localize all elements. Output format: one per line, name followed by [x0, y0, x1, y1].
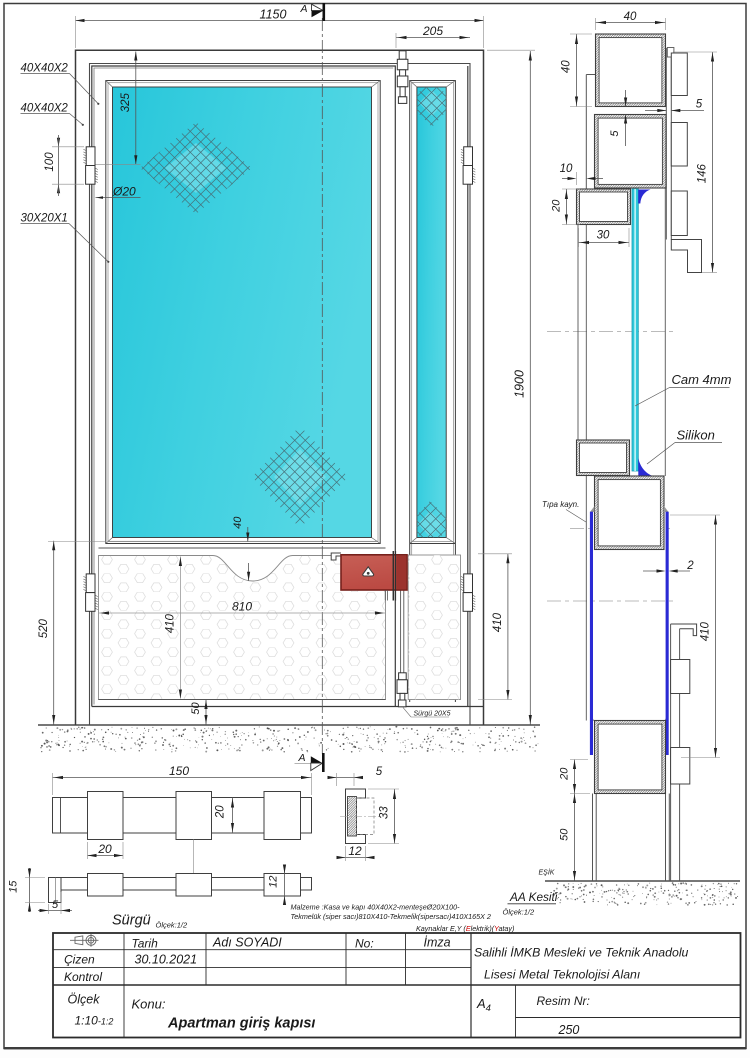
- svg-text:30: 30: [597, 230, 610, 242]
- svg-text:40X40X2: 40X40X2: [21, 102, 69, 114]
- svg-text:146: 146: [697, 164, 709, 184]
- svg-text:Sürgü: Sürgü: [112, 913, 151, 929]
- svg-text:5: 5: [609, 130, 621, 137]
- svg-text:40: 40: [232, 516, 244, 529]
- svg-text:5: 5: [696, 99, 703, 111]
- svg-text:Ölçek: Ölçek: [68, 993, 101, 1007]
- svg-text:Ölçek:1/2: Ölçek:1/2: [156, 921, 189, 930]
- svg-text:Apartman giriş kapısı: Apartman giriş kapısı: [167, 1016, 315, 1032]
- svg-text:40X40X2: 40X40X2: [21, 62, 69, 74]
- svg-text:Silikon: Silikon: [677, 428, 715, 443]
- svg-text:12: 12: [348, 844, 362, 858]
- svg-text:20: 20: [215, 805, 227, 819]
- svg-text:Lisesi Metal Teknolojisi Alanı: Lisesi Metal Teknolojisi Alanı: [484, 968, 640, 982]
- svg-text:A: A: [299, 3, 307, 15]
- svg-text:AA Kesiti: AA Kesiti: [509, 890, 558, 904]
- svg-text:Çizen: Çizen: [64, 953, 95, 967]
- svg-text:Salihli İMKB Mesleki ve Teknik: Salihli İMKB Mesleki ve Teknik Anadolu: [474, 946, 689, 960]
- svg-text:50: 50: [190, 702, 202, 715]
- svg-text:Tekmelük (siper sacı)810X410-T: Tekmelük (siper sacı)810X410-Tekmelik(si…: [291, 912, 491, 921]
- svg-text:100: 100: [44, 152, 56, 172]
- svg-text:Cam 4mm: Cam 4mm: [672, 372, 732, 387]
- svg-text:5: 5: [376, 766, 383, 778]
- svg-text:150: 150: [169, 764, 189, 778]
- svg-text:250: 250: [558, 1023, 580, 1037]
- svg-text:Adı SOYADI: Adı SOYADI: [212, 936, 282, 950]
- svg-text:20: 20: [559, 767, 571, 781]
- svg-text:Kaynaklar E,Y (Elektrik)(Yatay: Kaynaklar E,Y (Elektrik)(Yatay): [416, 924, 514, 933]
- svg-text:410: 410: [165, 614, 177, 634]
- svg-text:Tarih: Tarih: [132, 937, 159, 951]
- svg-text:15: 15: [8, 880, 20, 893]
- svg-text:30X20X1: 30X20X1: [21, 212, 68, 224]
- svg-text:1900: 1900: [513, 370, 527, 398]
- svg-text:40: 40: [624, 11, 637, 23]
- svg-text:5: 5: [52, 899, 59, 911]
- svg-text:20: 20: [551, 199, 563, 213]
- svg-text:410: 410: [492, 612, 504, 632]
- svg-text:40: 40: [561, 60, 573, 73]
- svg-text:No:: No:: [355, 937, 374, 951]
- svg-text:Sürgü 20X5: Sürgü 20X5: [414, 711, 451, 718]
- svg-text:12: 12: [268, 876, 280, 888]
- svg-text:İmza: İmza: [424, 936, 451, 950]
- svg-text:50: 50: [559, 828, 571, 841]
- svg-text:2: 2: [686, 560, 694, 572]
- svg-text:205: 205: [422, 24, 443, 38]
- svg-text:Konu:: Konu:: [132, 997, 166, 1012]
- svg-text:520: 520: [38, 619, 50, 639]
- svg-text:Resim Nr:: Resim Nr:: [537, 994, 590, 1008]
- svg-text:Tıpa kayn.: Tıpa kayn.: [542, 500, 579, 509]
- svg-text:A: A: [297, 752, 305, 764]
- svg-text:325: 325: [120, 93, 132, 113]
- svg-text:Kontrol: Kontrol: [64, 970, 102, 984]
- svg-text:Ø20: Ø20: [112, 185, 136, 199]
- svg-text:33: 33: [379, 806, 391, 819]
- svg-text:1:10-1:2: 1:10-1:2: [75, 1014, 114, 1028]
- svg-text:Malzeme :Kasa ve kapı 40X40X2-: Malzeme :Kasa ve kapı 40X40X2-menteşeØ20…: [291, 903, 461, 912]
- svg-text:EŞİK: EŞİK: [539, 869, 555, 877]
- svg-text:1150: 1150: [260, 7, 287, 21]
- svg-text:30.10.2021: 30.10.2021: [135, 953, 198, 967]
- svg-text:410: 410: [700, 622, 712, 642]
- svg-text:Ölçek:1/2: Ölçek:1/2: [503, 908, 536, 917]
- svg-text:10: 10: [560, 163, 573, 175]
- svg-text:810: 810: [232, 600, 252, 614]
- svg-text:20: 20: [97, 842, 112, 856]
